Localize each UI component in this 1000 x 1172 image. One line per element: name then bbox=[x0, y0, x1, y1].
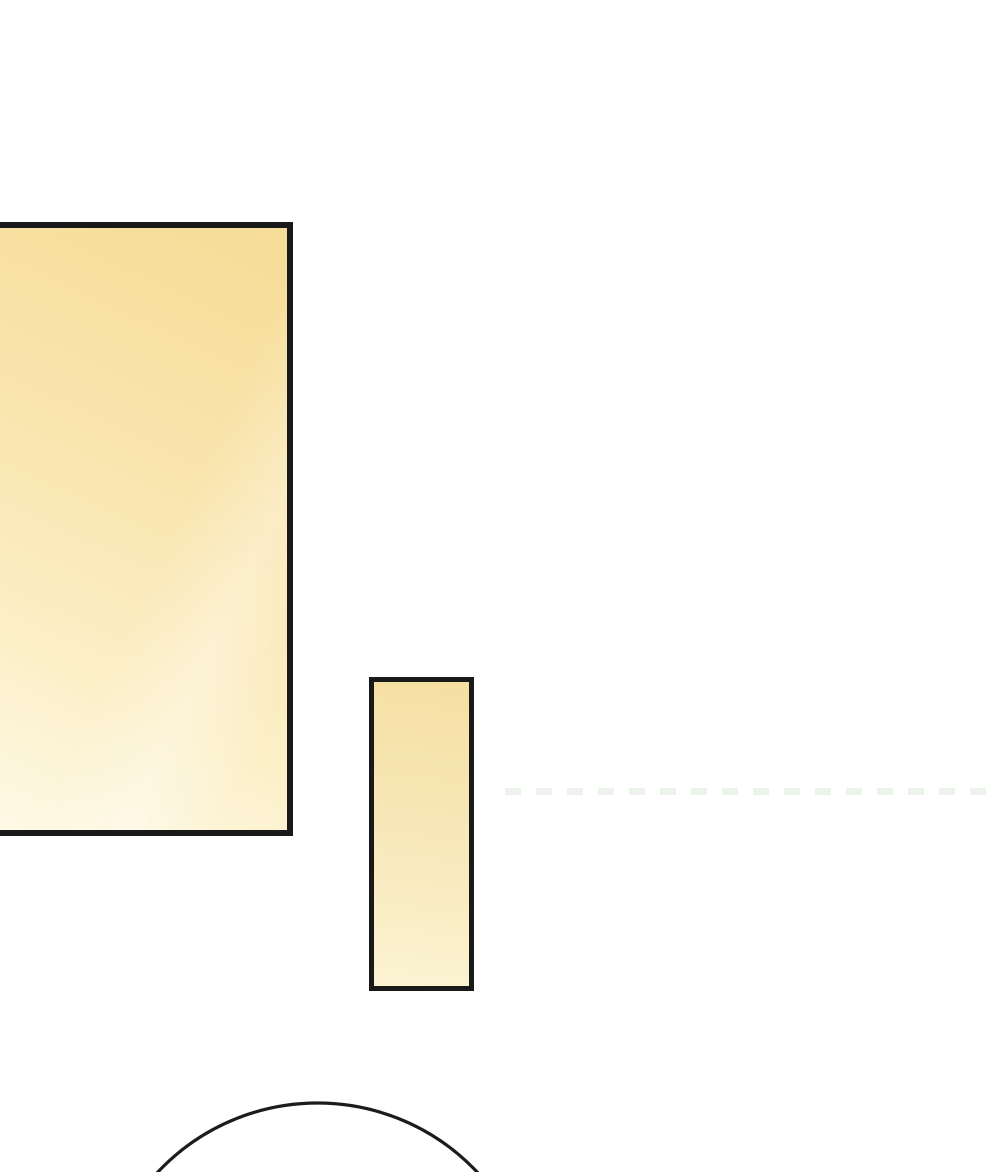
small-panel bbox=[369, 677, 474, 991]
comic-page bbox=[0, 0, 1000, 1172]
large-panel bbox=[0, 222, 293, 836]
dashed-tone-line bbox=[505, 788, 1000, 795]
speech-bubble-circle bbox=[99, 1103, 537, 1172]
